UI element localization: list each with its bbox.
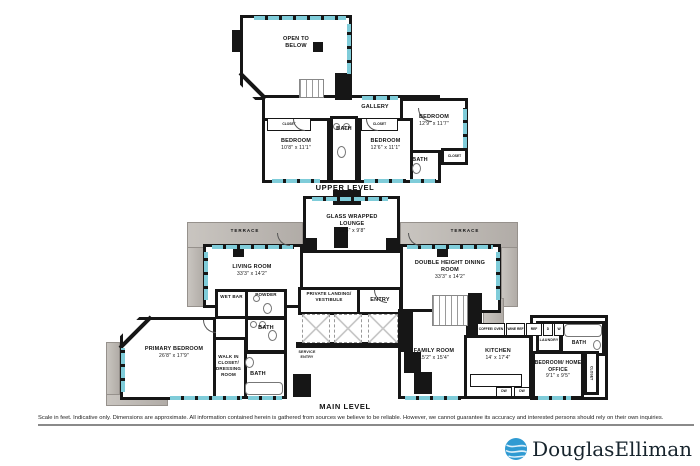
disclaimer-text: Scale in feet. Indicative only. Dimensio… (38, 415, 694, 426)
window-strip (496, 252, 500, 300)
room-label-bedroom-c: BEDROOM 12'9" x 11'7" (402, 114, 466, 128)
window-strip (312, 197, 388, 201)
elevator-shaft (368, 314, 398, 343)
appliance-box: REF (526, 323, 542, 336)
wall-segment (414, 372, 432, 394)
room-name: BEDROOM (370, 138, 400, 144)
room-name: GLASS WRAPPED LOUNGE (326, 214, 377, 227)
appliance-label: W (557, 328, 560, 332)
room-dims: 15'2" x 15'4" (404, 355, 464, 362)
room-name: BEDROOM (419, 114, 449, 120)
room-dims: 9'1" x 9'5" (532, 373, 584, 380)
room-name: FAMILY ROOM (414, 348, 454, 354)
appliance-label: DW (519, 390, 525, 394)
room-label-bath-a: BATH (331, 126, 357, 133)
window-strip (538, 396, 571, 400)
room-name: LIVING ROOM (232, 264, 271, 270)
window-strip (347, 24, 351, 74)
room-label-office: BEDROOM/ HOME OFFICE 9'1" x 9'5" (532, 360, 584, 380)
room-dims: 33'3" x 14'2" (220, 271, 284, 278)
fixture-toilet (263, 303, 272, 314)
room-label-lounge: GLASS WRAPPED LOUNGE 18'6" x 9'8" (321, 214, 383, 235)
room-dims: 10'8" x 11'1" (268, 145, 324, 152)
window-strip (254, 16, 346, 20)
room-dims: 26'8" x 17'9" (144, 353, 204, 360)
window-strip (212, 245, 294, 249)
appliance-label: D (547, 328, 549, 332)
room-label-gallery: GALLERY (350, 104, 400, 111)
logo-globe-icon (504, 437, 528, 461)
logo-wordmark: DouglasElliman (532, 437, 692, 461)
elevator-shaft (334, 314, 362, 343)
appliance-box: DW (514, 387, 530, 397)
room-label-living: LIVING ROOM 33'3" x 14'2" (220, 264, 284, 278)
room-label-bath-b: BATH (406, 157, 434, 164)
room-label-wet-bar: WET BAR (219, 294, 244, 300)
room-label-bath-right: BATH (565, 340, 593, 347)
window-strip (248, 396, 282, 400)
room-label-family: FAMILY ROOM 15'2" x 15'4" (404, 348, 464, 362)
appliance-label: COFFEE/ OVEN (479, 328, 504, 332)
window-strip (362, 96, 398, 100)
fixture-toilet (593, 340, 601, 350)
room-label-bath-mid: BATH (250, 325, 282, 332)
room-dims: 12'9" x 11'7" (402, 121, 466, 128)
bathtub (245, 382, 283, 395)
terrace-label: TERRACE (210, 228, 280, 234)
appliance-label: DW (501, 390, 507, 394)
room-label-laundry: LAUNDRY (537, 338, 561, 343)
appliance-label: REF (531, 328, 538, 332)
room-name: BEDROOM (281, 138, 311, 144)
room-name: DOUBLE HEIGHT DINING ROOM (415, 260, 485, 273)
window-strip (121, 348, 125, 392)
window-strip (405, 396, 461, 400)
wall-segment (303, 238, 317, 253)
main-level-title: MAIN LEVEL (300, 402, 390, 411)
appliance-box: D (543, 323, 553, 336)
room-label-bedroom-a: BEDROOM 10'8" x 11'1" (268, 138, 324, 152)
window-strip (204, 252, 208, 300)
room-label-primary: PRIMARY BEDROOM 26'8" x 17'9" (144, 346, 204, 360)
room-dims: 18'6" x 9'8" (321, 228, 383, 235)
closet-label: CLOSET (448, 155, 461, 159)
appliance-box: W (554, 323, 564, 336)
wall-segment (232, 30, 241, 52)
room-dims: 14' x 17'4" (470, 355, 526, 362)
wall-segment (293, 374, 311, 397)
fixture-toilet (245, 357, 254, 368)
fixture-toilet (412, 163, 421, 174)
appliance-box: WINE REF (506, 323, 525, 336)
room-label-kitchen: KITCHEN 14' x 17'4" (470, 348, 526, 362)
elevator-shaft (302, 314, 330, 343)
kitchen-island (470, 374, 522, 387)
room-label-closet-right: CLOSET (585, 360, 598, 386)
bathtub (564, 324, 602, 337)
staircase (432, 295, 468, 326)
appliance-box: COFFEE/ OVEN (477, 323, 505, 336)
room-label-powder: POWDER (249, 292, 283, 298)
room-label-bedroom-b: BEDROOM 12'6" x 11'1" (359, 138, 412, 152)
floor-plan-canvas: CLOSET CLOSET CLOSET OPEN TO BELOW GALLE… (0, 0, 700, 466)
appliance-label: WINE REF (507, 328, 523, 332)
room-label-landing: PRIVATE LANDING/ VESTIBULE (304, 291, 354, 303)
window-strip (170, 396, 242, 400)
room-label-walk-in: WALK IN CLOSET/ DRESSING ROOM (211, 354, 246, 377)
room-name: PRIMARY BEDROOM (145, 346, 203, 352)
room-dims: 12'6" x 11'1" (359, 145, 412, 152)
room-label-service-entry: SERVICE ENTRY (294, 350, 320, 359)
room-name: BEDROOM/ HOME OFFICE (535, 360, 582, 373)
terrace-left-strip (187, 247, 204, 307)
fixture-toilet (337, 146, 346, 158)
room-label-open-to-below: OPEN TO BELOW (272, 36, 320, 50)
room-label-dining: DOUBLE HEIGHT DINING ROOM 33'3" x 14'2" (412, 260, 488, 281)
room-label-entry: ENTRY (362, 297, 398, 304)
terrace-label: TERRACE (430, 228, 500, 234)
douglas-elliman-logo: DouglasElliman (504, 437, 692, 461)
wall-segment (386, 238, 400, 253)
staircase (299, 79, 324, 98)
appliance-box: DW (496, 387, 512, 397)
room-dims: 33'3" x 14'2" (412, 274, 488, 281)
wall-segment (335, 73, 352, 100)
closet-box: CLOSET (443, 150, 466, 163)
room-name: KITCHEN (485, 348, 511, 354)
terrace-primary-left (106, 342, 120, 402)
window-strip (410, 179, 436, 183)
room-label-bath-low: BATH (243, 371, 273, 378)
